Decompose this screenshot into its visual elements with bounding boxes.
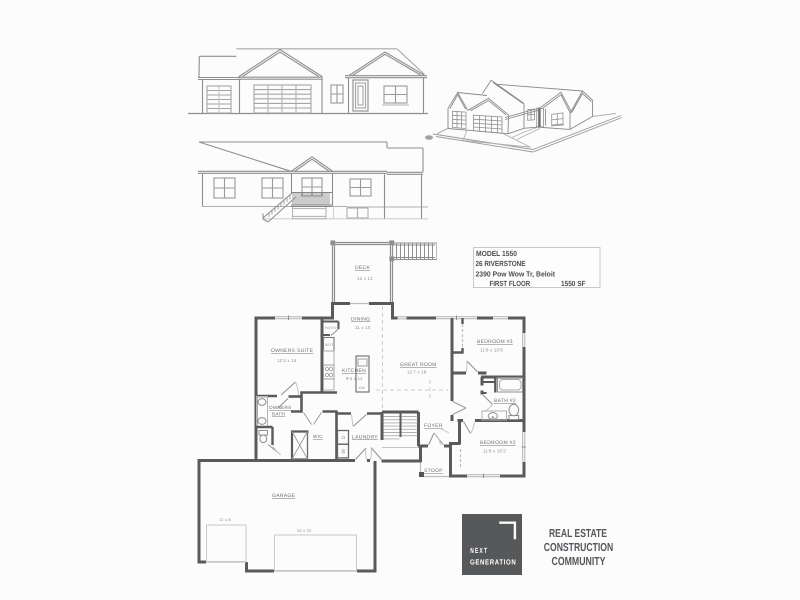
svg-text:REAL ESTATE: REAL ESTATE xyxy=(549,527,607,540)
svg-text:LAUNDRY: LAUNDRY xyxy=(352,435,378,441)
svg-text:STOOP: STOOP xyxy=(424,468,443,474)
svg-text:GREAT ROOM: GREAT ROOM xyxy=(400,362,437,368)
svg-text:OWNERS SUITE: OWNERS SUITE xyxy=(271,348,314,354)
svg-text:GENERATION: GENERATION xyxy=(470,557,516,566)
svg-text:11'8 x 10'8: 11'8 x 10'8 xyxy=(480,348,503,353)
svg-text:11 x 10: 11 x 10 xyxy=(355,325,371,330)
svg-text:2390 Pow Wow Tr, Beloit: 2390 Pow Wow Tr, Beloit xyxy=(476,269,556,278)
svg-text:NEXT: NEXT xyxy=(470,546,488,555)
svg-text:11 x 8: 11 x 8 xyxy=(219,517,231,522)
svg-text:12'4 x 14: 12'4 x 14 xyxy=(277,358,297,363)
svg-text:BEDROOM #3: BEDROOM #3 xyxy=(477,339,513,345)
svg-text:11'8 x 10'2: 11'8 x 10'2 xyxy=(483,449,506,454)
svg-text:BEDROOM #2: BEDROOM #2 xyxy=(480,440,516,446)
svg-text:CONSTRUCTION: CONSTRUCTION xyxy=(544,541,614,554)
svg-text:GARAGE: GARAGE xyxy=(272,493,296,499)
svg-text:9'4 x 11: 9'4 x 11 xyxy=(346,376,363,381)
svg-text:W: W xyxy=(341,449,347,454)
svg-text:1550 SF: 1550 SF xyxy=(561,279,586,288)
svg-text:REFR: REFR xyxy=(325,343,335,347)
svg-text:D: D xyxy=(341,435,347,439)
svg-text:24 x 22: 24 x 22 xyxy=(297,528,312,533)
svg-text:WIC: WIC xyxy=(313,434,323,439)
svg-text:12 x 12: 12 x 12 xyxy=(357,276,373,281)
svg-text:KITCHEN: KITCHEN xyxy=(342,368,366,374)
svg-text:BATH #2: BATH #2 xyxy=(494,398,516,404)
svg-text:OWNERS: OWNERS xyxy=(269,405,291,410)
svg-text:FIRST FLOOR: FIRST FLOOR xyxy=(490,279,531,288)
svg-text:DW: DW xyxy=(359,386,366,390)
svg-text:PANTRY: PANTRY xyxy=(325,326,340,330)
svg-text:26 RIVERSTONE: 26 RIVERSTONE xyxy=(476,259,526,268)
svg-text:DECK: DECK xyxy=(355,265,370,271)
svg-text:COMMUNITY: COMMUNITY xyxy=(552,555,606,568)
svg-text:DINING: DINING xyxy=(351,317,370,323)
svg-text:MODEL 1550: MODEL 1550 xyxy=(476,249,517,258)
svg-text:BATH: BATH xyxy=(272,412,285,417)
svg-text:12'7 x 18: 12'7 x 18 xyxy=(407,370,427,375)
